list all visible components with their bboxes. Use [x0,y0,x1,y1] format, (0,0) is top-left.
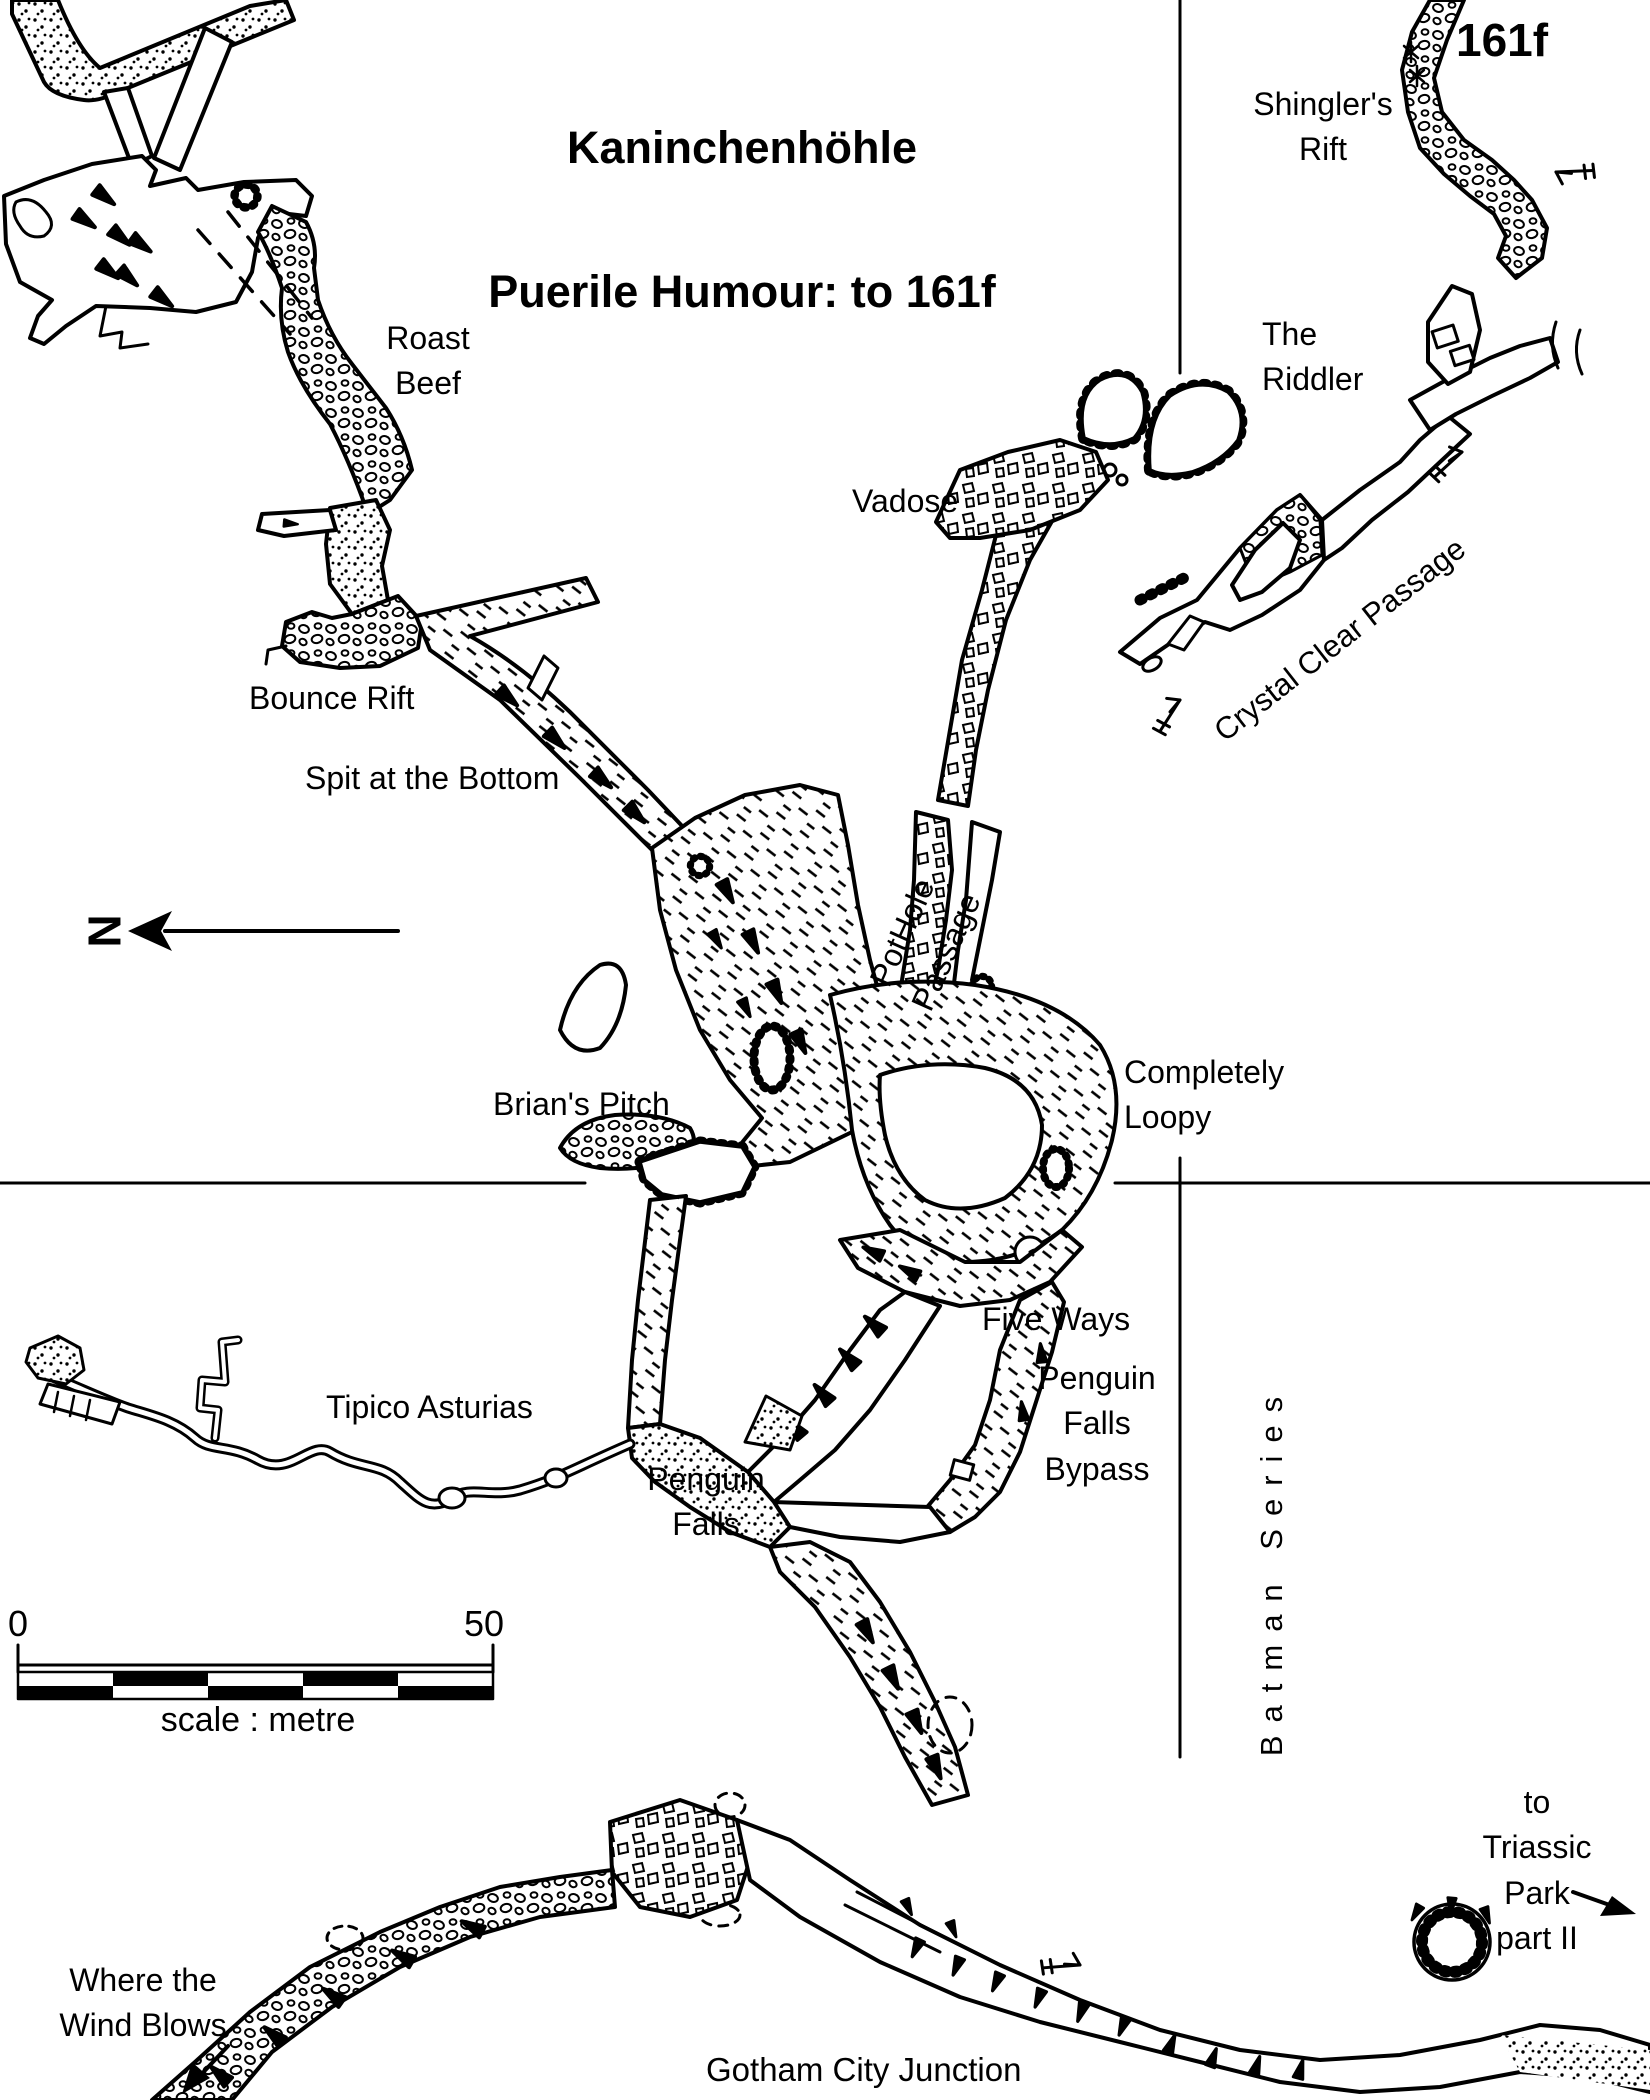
label-spit-at-the-bottom: Spit at the Bottom [305,756,559,801]
scale-caption: scale : metre [161,1696,356,1744]
label-vadose: Vadose [852,479,958,524]
label-where-the-wind-blows: Where the Wind Blows [59,1958,226,2049]
survey-number-tag: 161f [1456,8,1548,73]
label-the-riddler: The Riddler [1262,312,1363,403]
label-tipico-asturias: Tipico Asturias [326,1385,533,1430]
label-batman-series: Batman Series [1250,1384,1294,1756]
bounce-rift-complex [258,500,422,668]
map-title: Kaninchenhöhle Puerile Humour: to 161f [488,40,996,400]
label-penguin-falls: Penguin Falls [647,1457,764,1548]
scale-start-label: 0 [8,1598,28,1649]
the-riddler-junction [1410,286,1582,430]
spit-at-the-bottom-passage [416,578,684,852]
entrance-complex [4,0,312,348]
label-penguin-falls-bypass: Penguin Falls Bypass [1038,1356,1155,1492]
completely-loopy-loop [830,982,1116,1267]
cave-survey-map: Kaninchenhöhle Puerile Humour: to 161f 1… [0,0,1650,2100]
label-shinglers-rift: Shingler's Rift [1253,82,1393,173]
scale-bar [18,1645,493,1699]
label-to-triassic-park: to Triassic Park part II [1481,1780,1594,1962]
label-completely-loopy: Completely Loopy [1124,1050,1284,1141]
label-bounce-rift: Bounce Rift [249,676,414,721]
label-roast-beef: Roast Beef [386,316,470,407]
label-brians-pitch: Brian's Pitch [493,1082,670,1127]
penguin-falls-passage [745,1292,940,1502]
label-five-ways: Five Ways [982,1297,1130,1342]
label-gotham-city-junction: Gotham City Junction [706,2047,1021,2094]
brians-pitch [560,1115,754,1428]
north-arrow [128,911,398,951]
vadose-area [936,375,1241,806]
map-title-line1: Kaninchenhöhle [488,112,996,184]
north-letter: N [71,914,136,947]
scale-end-label: 50 [464,1598,504,1649]
map-title-line2: Puerile Humour: to 161f [488,256,996,328]
